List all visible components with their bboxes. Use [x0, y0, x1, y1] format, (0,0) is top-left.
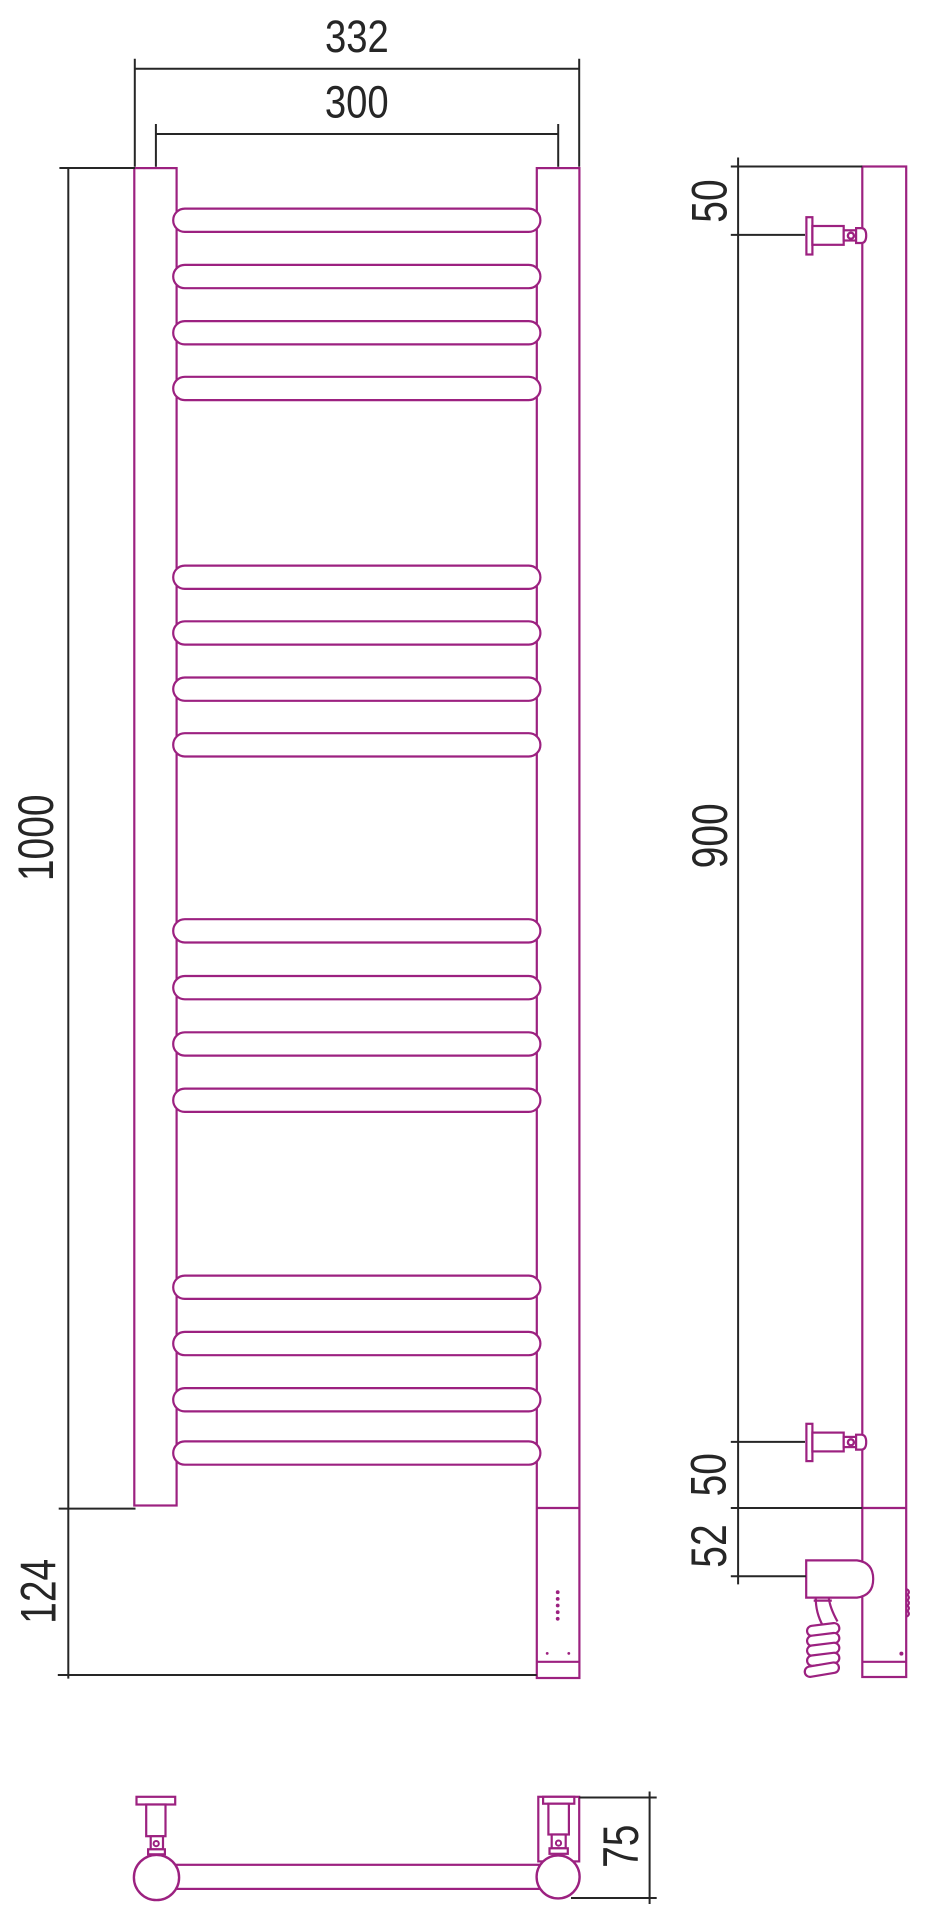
svg-text:75: 75 [592, 1825, 649, 1868]
svg-text:50: 50 [680, 1453, 737, 1496]
svg-text:124: 124 [10, 1559, 67, 1624]
svg-text:52: 52 [680, 1524, 737, 1567]
svg-text:332: 332 [325, 11, 389, 62]
svg-text:1000: 1000 [7, 794, 64, 881]
svg-text:300: 300 [325, 77, 389, 128]
svg-text:900: 900 [681, 803, 738, 868]
svg-text:50: 50 [681, 179, 738, 222]
